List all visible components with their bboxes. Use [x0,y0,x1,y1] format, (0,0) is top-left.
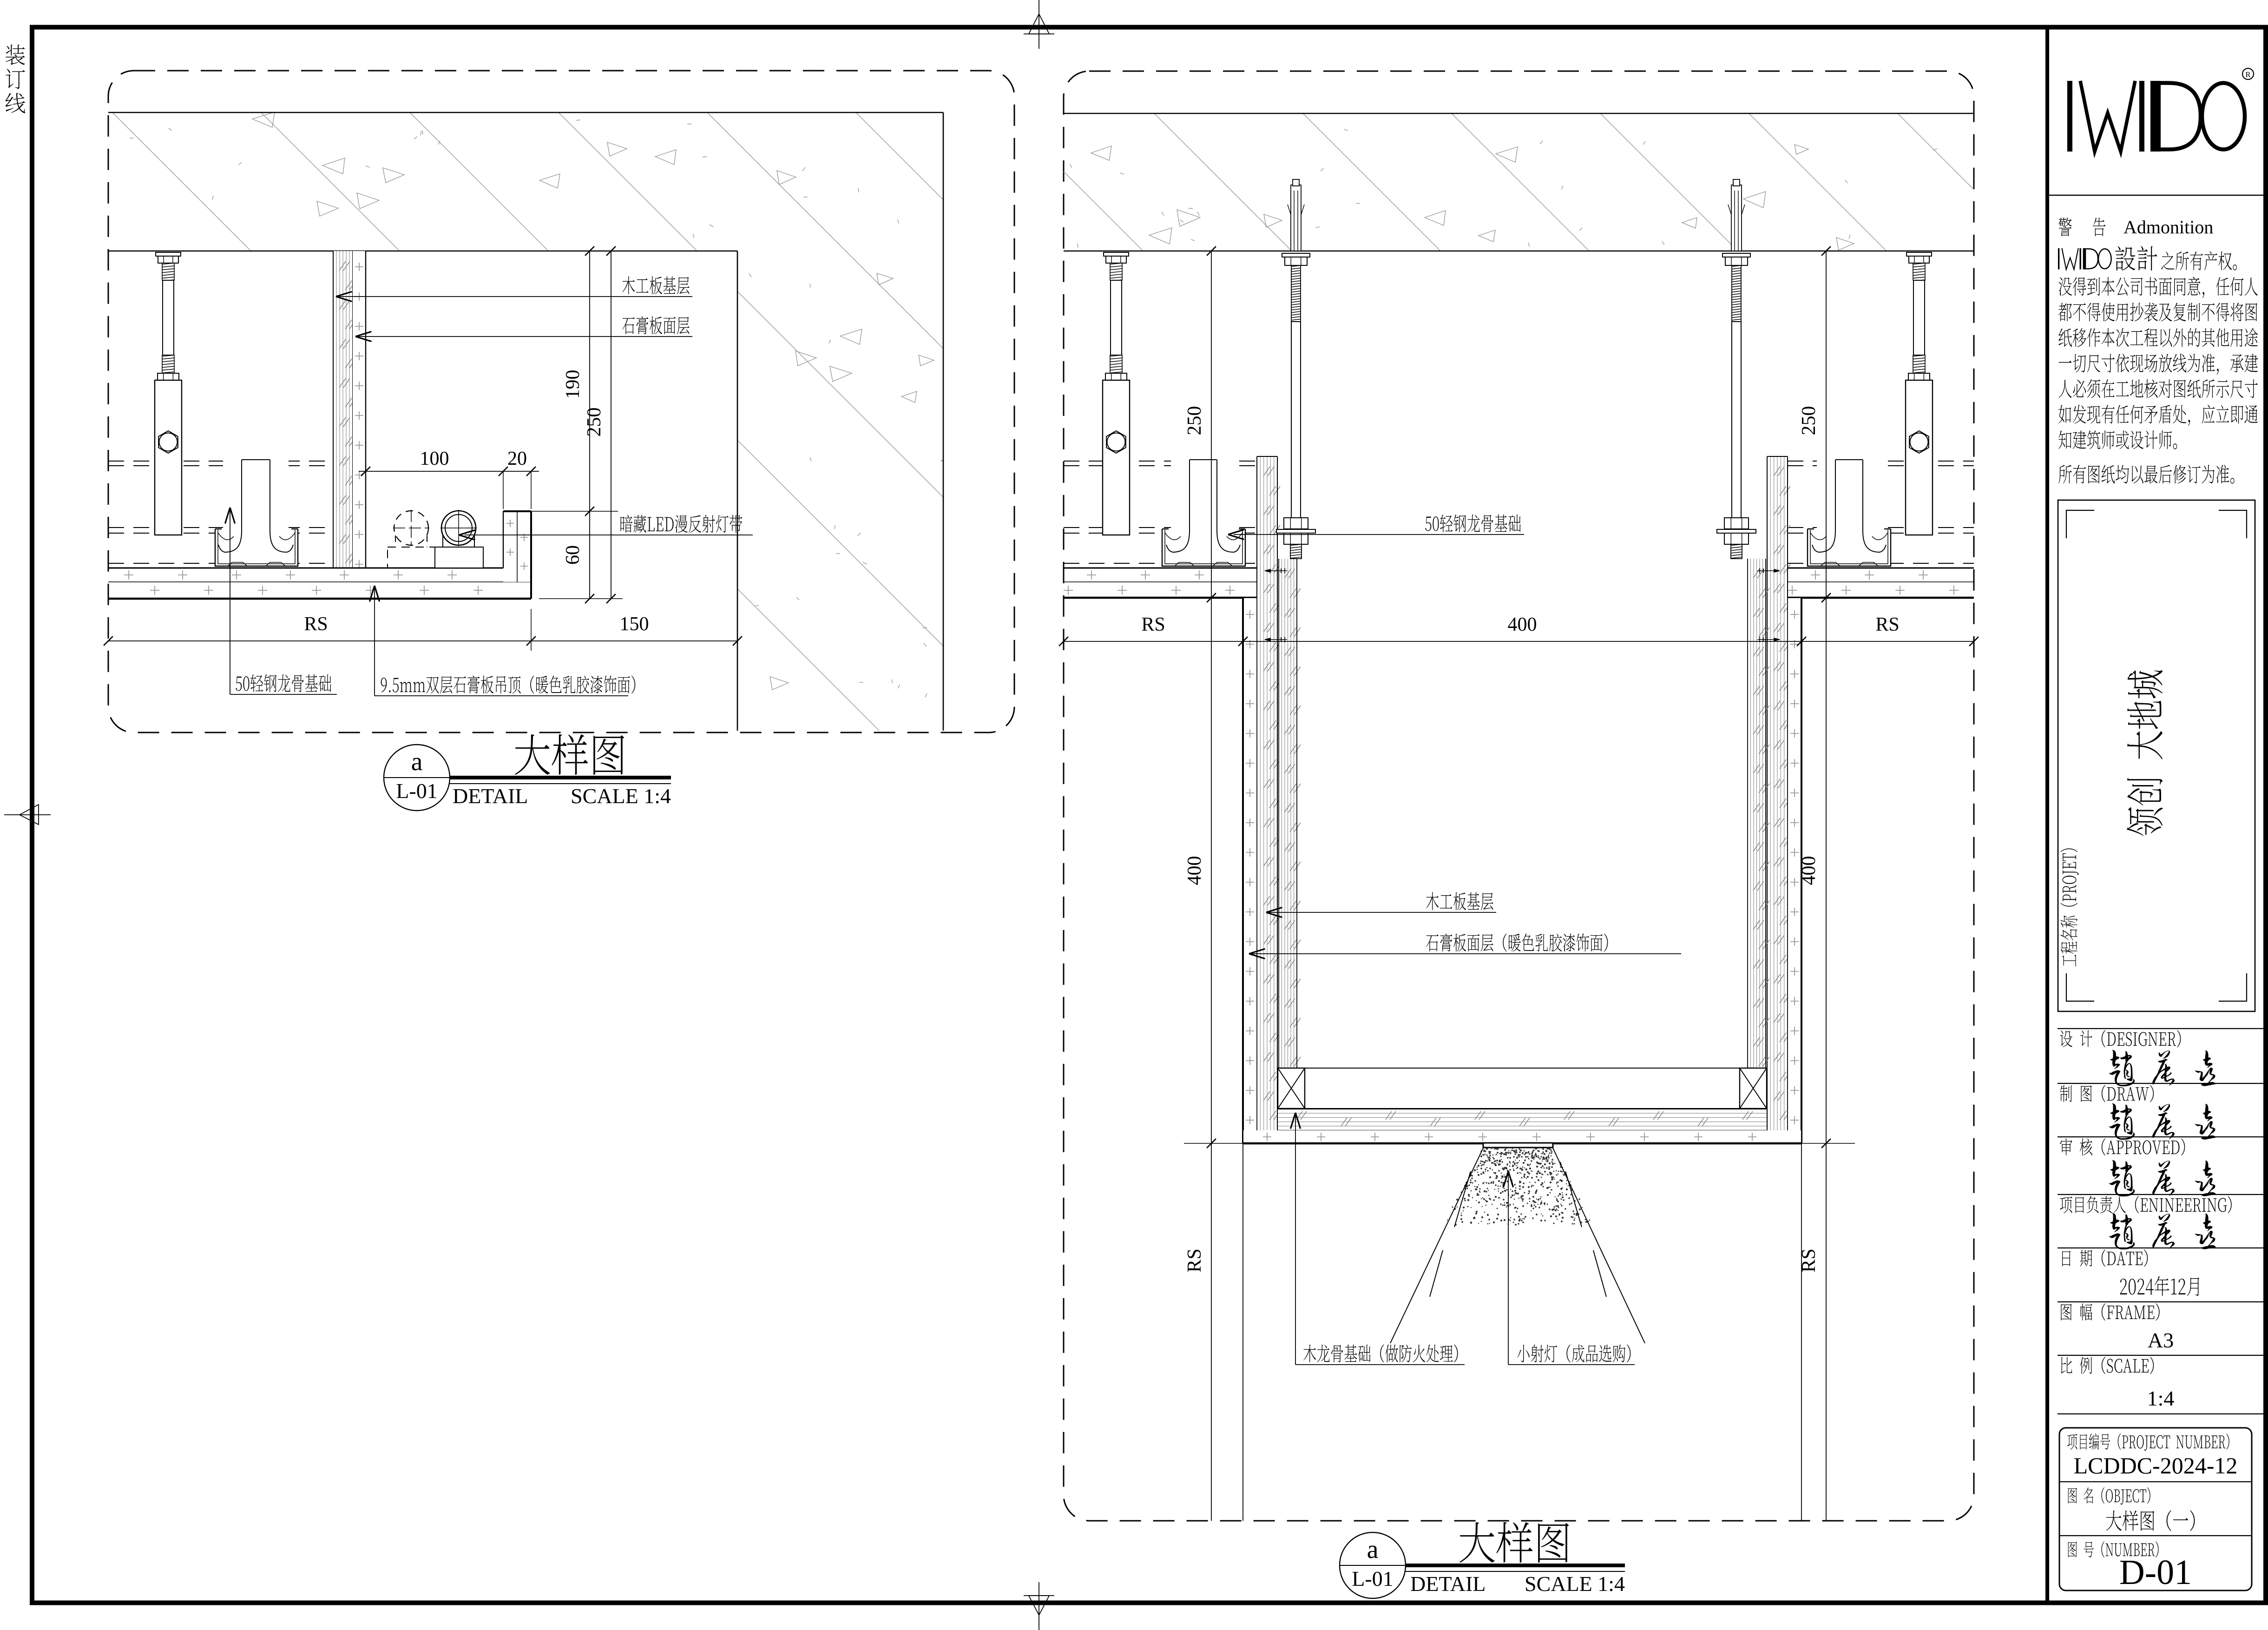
svg-text:RS: RS [1141,614,1165,635]
svg-text:190: 190 [562,370,584,399]
svg-text:250: 250 [584,408,605,437]
svg-text:400: 400 [1798,856,1820,885]
svg-text:A3: A3 [2148,1328,2174,1352]
svg-text:250: 250 [1798,406,1820,436]
svg-text:R: R [2245,70,2251,79]
svg-text:LCDDC-2024-12: LCDDC-2024-12 [2074,1452,2238,1478]
svg-text:RS: RS [1875,614,1899,635]
svg-text:DETAIL: DETAIL [1410,1572,1486,1596]
svg-text:150: 150 [620,614,649,635]
svg-text:L-01: L-01 [396,779,437,803]
svg-text:250: 250 [1184,406,1205,436]
svg-text:400: 400 [1508,614,1537,635]
svg-text:RS: RS [304,614,328,635]
svg-text:SCALE 1:4: SCALE 1:4 [1525,1572,1625,1596]
svg-text:a: a [411,747,423,776]
svg-text:100: 100 [420,448,449,469]
svg-text:20: 20 [507,448,527,469]
svg-text:a: a [1367,1535,1379,1564]
svg-text:SCALE 1:4: SCALE 1:4 [571,784,671,808]
svg-text:1:4: 1:4 [2147,1386,2175,1410]
svg-text:400: 400 [1184,856,1205,885]
svg-text:L-01: L-01 [1352,1567,1393,1590]
svg-text:D-01: D-01 [2119,1553,2192,1592]
svg-text:DETAIL: DETAIL [453,784,528,808]
svg-text:Admonition: Admonition [2123,217,2213,238]
svg-text:60: 60 [562,545,584,565]
svg-text:RS: RS [1184,1248,1205,1272]
